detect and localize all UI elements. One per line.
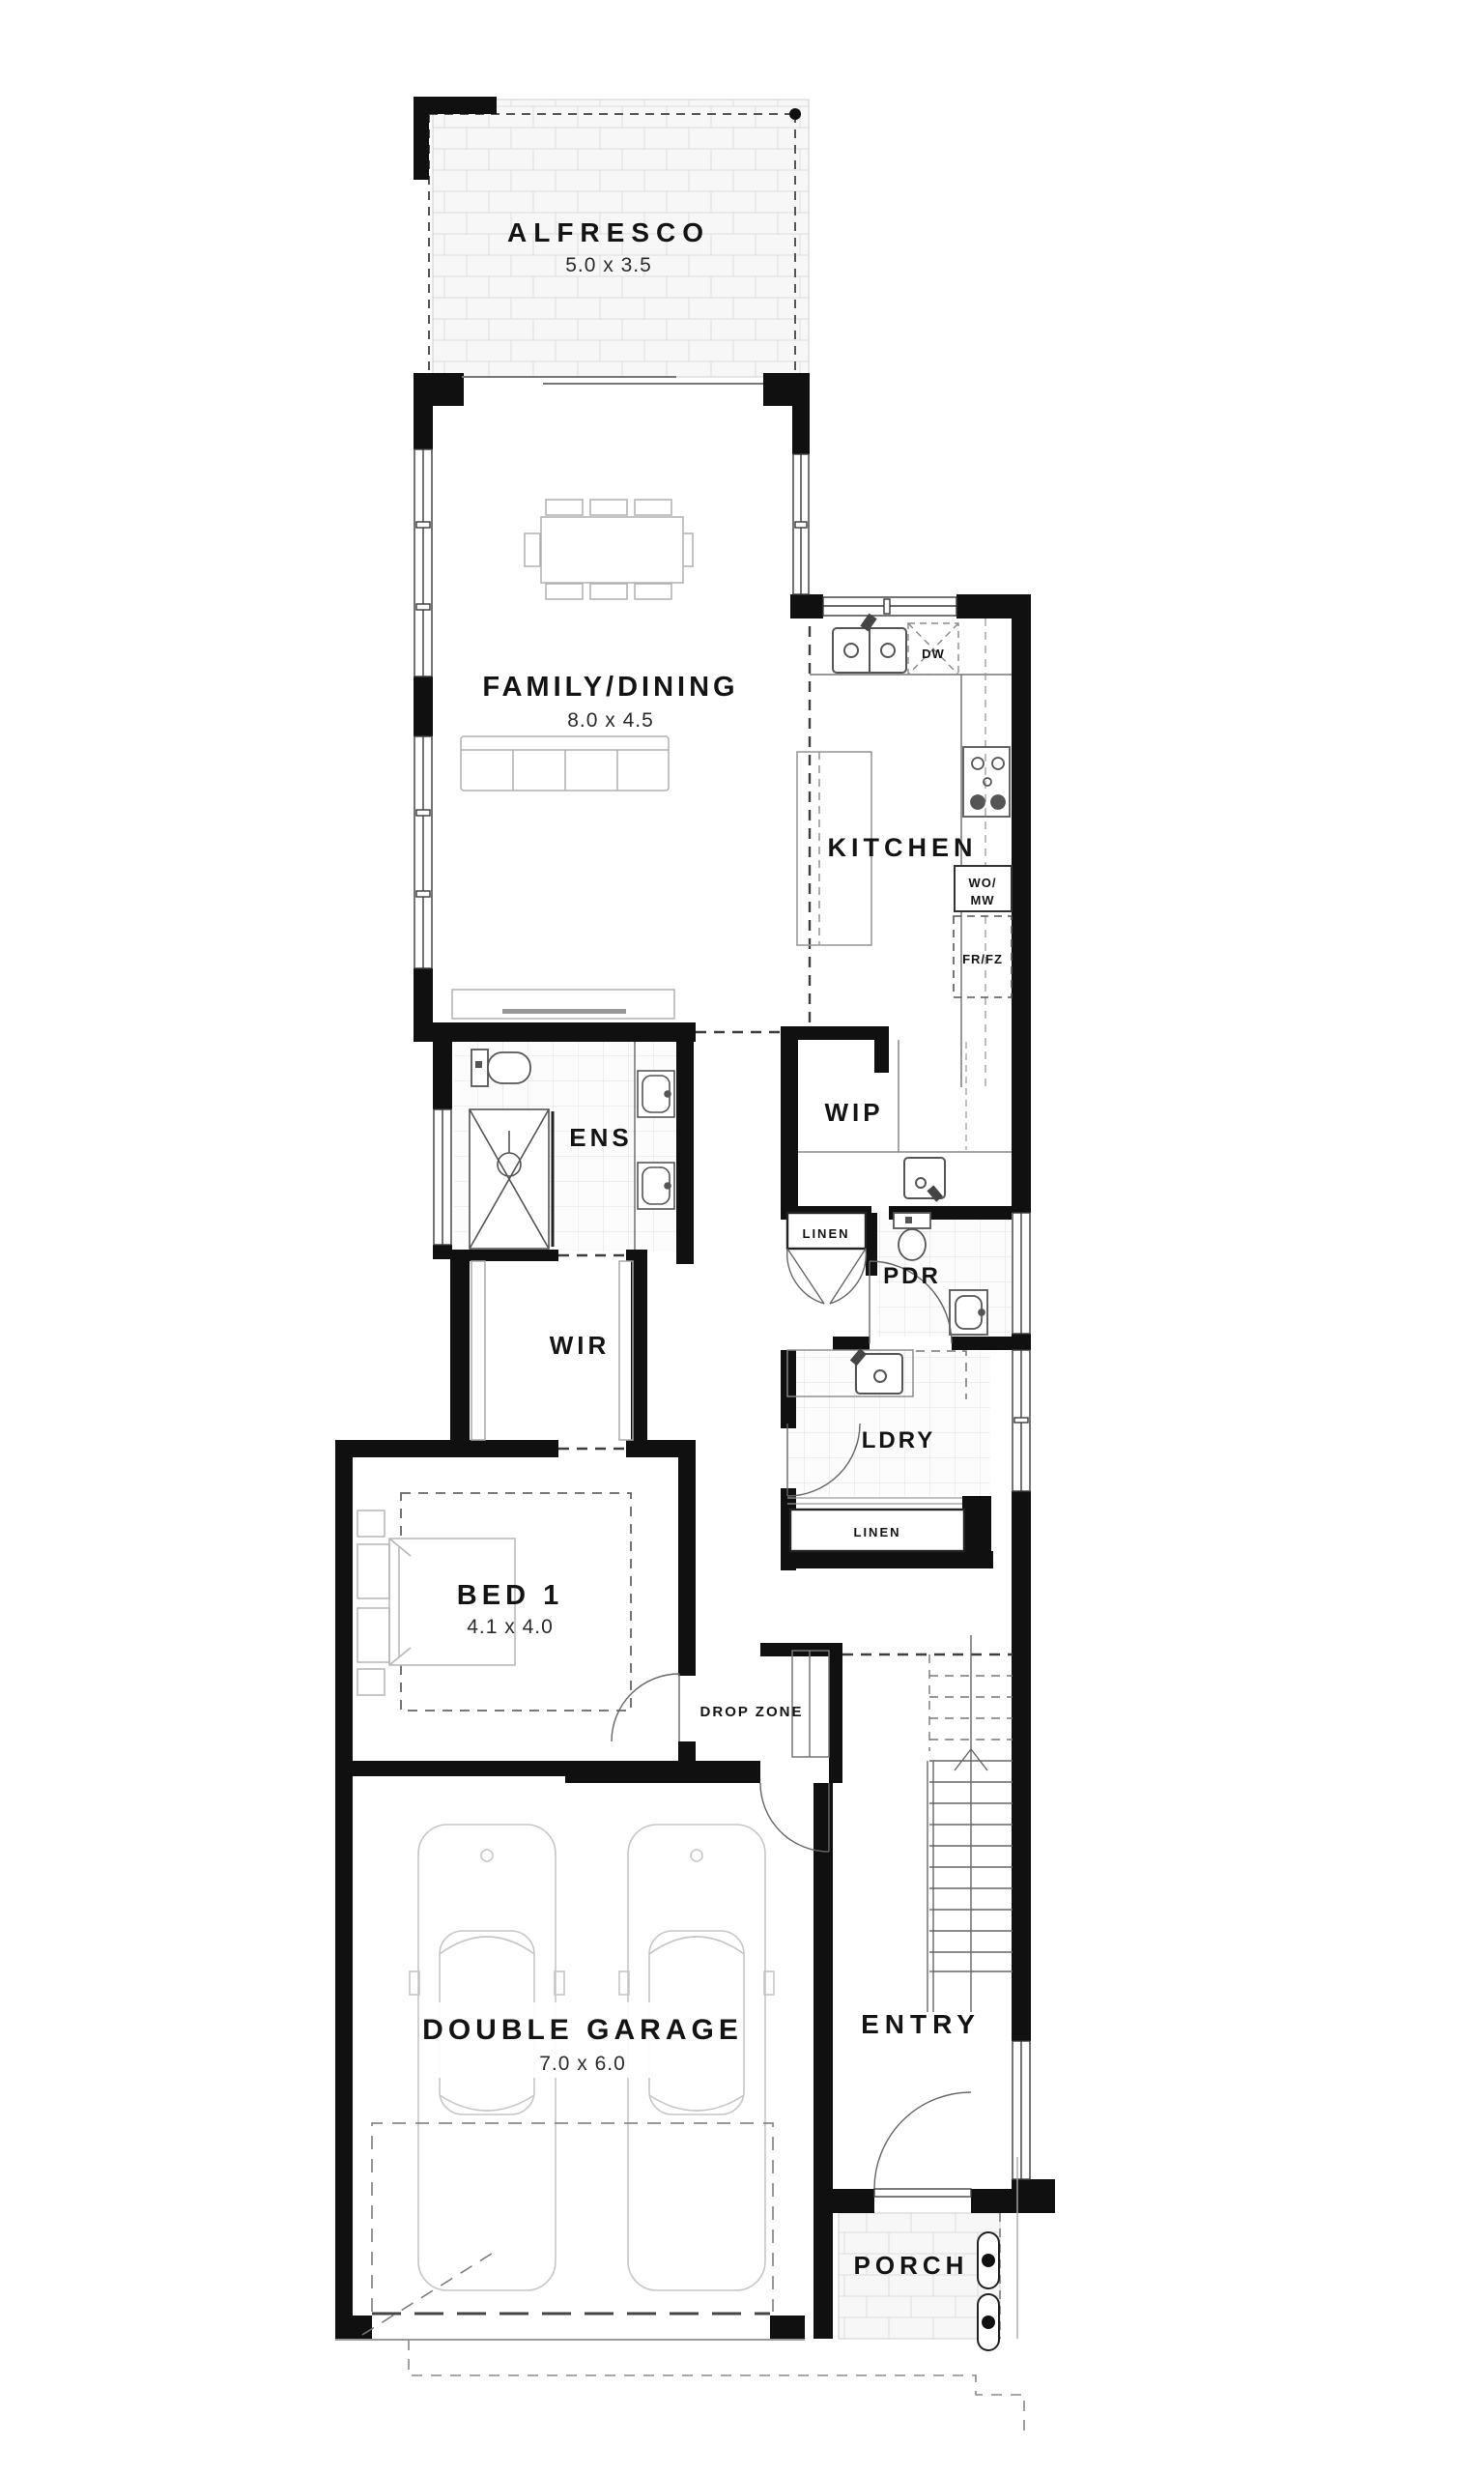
window-entry-right — [1013, 2041, 1030, 2179]
wall-wir-top-a — [450, 1250, 558, 1261]
label-garage: DOUBLE GARAGE — [422, 2014, 743, 2046]
wall-family-bottom — [414, 1022, 696, 1042]
wall-family-left-1 — [414, 406, 433, 449]
window-family-left-2 — [414, 736, 432, 968]
wall-ldry-bottom — [781, 1551, 993, 1568]
wall-bed1-right — [678, 1457, 696, 1676]
wall-front-door-right — [971, 2189, 1012, 2213]
wall-front-door-left — [821, 2189, 874, 2213]
wall-garage-entry — [813, 1783, 833, 2339]
floor-plan-drawing: ALFRESCO 5.0 x 3.5 FAMILY/DINING 8.0 x 4… — [0, 0, 1484, 2474]
basin-pdr-icon — [950, 1290, 987, 1335]
label-ens: ENS — [569, 1123, 632, 1152]
wall-wir-left — [450, 1250, 470, 1448]
wall-kitchen-top-a — [790, 594, 823, 618]
dims-family-dining: 8.0 x 4.5 — [567, 709, 654, 732]
pier-garage-left — [335, 2316, 372, 2341]
wall-west-lower — [335, 1440, 353, 2339]
label-ldry: LDRY — [862, 1427, 935, 1453]
label-wall-oven-2: MW — [970, 893, 994, 907]
label-alfresco: ALFRESCO — [507, 217, 710, 247]
wall-alfresco-top-v — [414, 97, 429, 180]
window-ldry-right — [1013, 1350, 1030, 1491]
wall-garage-top-thick — [565, 1761, 760, 1783]
label-kitchen: KITCHEN — [828, 833, 978, 862]
label-porch: PORCH — [854, 2251, 969, 2280]
tv-unit — [452, 990, 674, 1019]
label-drop-zone: DROP ZONE — [700, 1704, 804, 1720]
label-wall-oven-1: WO/ — [969, 876, 997, 890]
dims-bed1: 4.1 x 4.0 — [467, 1616, 554, 1638]
wall-east-mid — [1012, 1334, 1031, 1350]
wall-ens-left-2 — [433, 1245, 452, 1259]
window-pdr-right — [1013, 1213, 1030, 1334]
label-wir: WIR — [550, 1331, 611, 1360]
label-dishwasher: DW — [922, 647, 945, 661]
wall-ldry-left-a — [781, 1350, 796, 1428]
wall-wip-top-stub — [874, 1026, 889, 1073]
label-linen-upper: LINEN — [803, 1226, 850, 1241]
door-front-leaf — [874, 2189, 971, 2197]
wall-pdr-bottom-b — [952, 1337, 1012, 1350]
wall-east-upper — [1012, 594, 1031, 1213]
wall-bed1-top-b — [626, 1440, 696, 1457]
wall-bed1-top-a — [335, 1440, 558, 1457]
alfresco-post — [789, 108, 801, 120]
wall-alfresco-bl — [414, 373, 464, 406]
wall-dropzone-top — [760, 1643, 842, 1656]
dims-alfresco: 5.0 x 3.5 — [565, 254, 652, 276]
label-fridge: FR/FZ — [962, 952, 1003, 966]
wall-east-lower — [1012, 1491, 1031, 2041]
tv-icon — [502, 1009, 626, 1014]
wall-alfresco-br — [763, 373, 810, 406]
label-pdr: PDR — [883, 1263, 941, 1289]
wall-linen-stub — [866, 1213, 877, 1276]
label-linen-lower: LINEN — [854, 1525, 901, 1539]
toilet-ens-icon — [471, 1050, 530, 1086]
label-bed1: BED 1 — [457, 1580, 563, 1611]
label-entry: ENTRY — [861, 2009, 981, 2039]
wall-dropzone-right — [829, 1643, 842, 1783]
wall-family-left-pier — [414, 676, 433, 736]
wall-bed1-right-stub — [678, 1741, 696, 1763]
sofa — [461, 736, 669, 791]
wall-pdr-bottom-a — [833, 1337, 870, 1350]
shower-ens-icon — [470, 1109, 553, 1249]
wall-ens-right — [676, 1022, 694, 1264]
window-ens-left — [434, 1109, 451, 1245]
label-wip: WIP — [824, 1098, 883, 1127]
window-family-left-1 — [414, 449, 432, 676]
wall-family-right — [792, 406, 810, 454]
floor-plan-page: ALFRESCO 5.0 x 3.5 FAMILY/DINING 8.0 x 4… — [0, 0, 1484, 2474]
ldry-sink — [850, 1348, 902, 1394]
pier-garage-right — [770, 2316, 805, 2341]
wall-wip-top — [781, 1026, 889, 1040]
label-family-dining: FAMILY/DINING — [482, 672, 738, 703]
pier-front-right — [1012, 2179, 1055, 2213]
window-family-right — [793, 454, 809, 594]
window-kitchen — [823, 597, 956, 616]
dims-garage: 7.0 x 6.0 — [539, 2053, 626, 2075]
dining-table — [525, 500, 693, 599]
wall-wip-left — [781, 1026, 798, 1216]
